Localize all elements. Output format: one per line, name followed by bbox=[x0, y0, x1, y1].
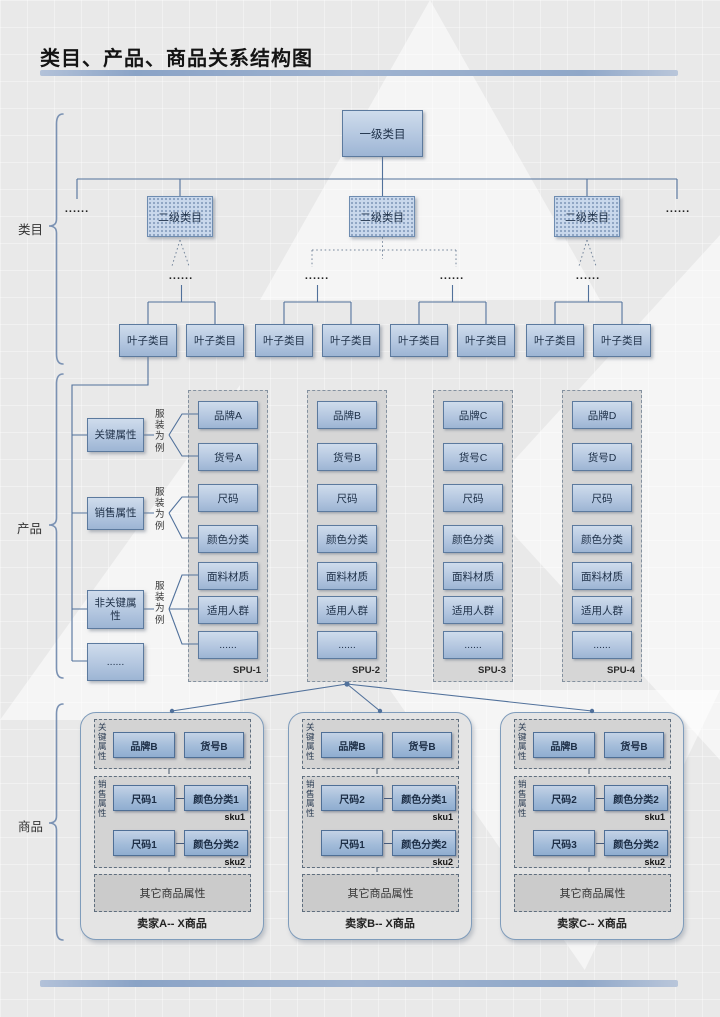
level2-category-box: 二级类目 bbox=[349, 196, 415, 237]
sku-color-box: 颜色分类1 bbox=[184, 785, 248, 811]
seller-itemno-box: 货号B bbox=[184, 732, 244, 758]
bottom-rule bbox=[40, 980, 678, 987]
title-rule bbox=[40, 70, 678, 76]
leaf-category-box: 叶子类目 bbox=[119, 324, 177, 357]
attr-group-box: 关键属性 bbox=[87, 418, 144, 452]
spu-attribute: 货号C bbox=[443, 443, 503, 471]
spu-attribute: 品牌A bbox=[198, 401, 258, 429]
sku-connector bbox=[384, 798, 392, 799]
attr-group-box: ...... bbox=[87, 643, 144, 681]
leaf-category-box: 叶子类目 bbox=[593, 324, 651, 357]
section-label-product: 产品 bbox=[17, 518, 42, 537]
spu-attribute: 货号A bbox=[198, 443, 258, 471]
seller-key-attrs-section: 关键属性 品牌B 货号B bbox=[514, 719, 671, 769]
level2-category-box: 二级类目 bbox=[147, 196, 213, 237]
sku-connector bbox=[596, 798, 604, 799]
spu-container: 品牌B 货号B 尺码 颜色分类 面料材质 适用人群 ...... SPU-2 bbox=[307, 390, 387, 682]
level2-category-box: 二级类目 bbox=[554, 196, 620, 237]
other-attrs-box: 其它商品属性 bbox=[514, 874, 671, 912]
ellipsis: ...... bbox=[156, 270, 206, 282]
seller-brand-box: 品牌B bbox=[113, 732, 175, 758]
ellipsis: ...... bbox=[653, 203, 703, 215]
sku-color-box: 颜色分类2 bbox=[604, 785, 668, 811]
sku-size-box: 尺码3 bbox=[533, 830, 595, 856]
seller-name: 卖家C-- X商品 bbox=[501, 915, 683, 931]
spu-attribute: 适用人群 bbox=[198, 596, 258, 624]
seller-card: 关键属性 品牌B 货号B 销售属性 尺码2 颜色分类1 sku1 尺码1 颜色分… bbox=[288, 712, 472, 940]
leaf-category-box: 叶子类目 bbox=[390, 324, 448, 357]
spu-attribute: 面料材质 bbox=[572, 562, 632, 590]
spu-attribute: 颜色分类 bbox=[317, 525, 377, 553]
seller-card: 关键属性 品牌B 货号B 销售属性 尺码2 颜色分类2 sku1 尺码3 颜色分… bbox=[500, 712, 684, 940]
spu-container: 品牌A 货号A 尺码 颜色分类 面料材质 适用人群 ...... SPU-1 bbox=[188, 390, 268, 682]
key-attrs-vertical-label: 关键属性 bbox=[306, 723, 316, 761]
spu-attribute: 颜色分类 bbox=[198, 525, 258, 553]
seller-brand-box: 品牌B bbox=[533, 732, 595, 758]
sales-attrs-vertical-label: 销售属性 bbox=[518, 780, 528, 818]
spu-attribute: 面料材质 bbox=[198, 562, 258, 590]
spu-container: 品牌D 货号D 尺码 颜色分类 面料材质 适用人群 ...... SPU-4 bbox=[562, 390, 642, 682]
diagram-page: 类目、产品、商品关系结构图 类目 产品 商品 品牌A 货号A 尺码 颜色分类 面… bbox=[0, 0, 720, 1017]
sku-size-box: 尺码2 bbox=[533, 785, 595, 811]
sku-size-box: 尺码1 bbox=[113, 785, 175, 811]
spu-attribute: 品牌D bbox=[572, 401, 632, 429]
spu-attribute: 尺码 bbox=[443, 484, 503, 512]
attr-group-box: 销售属性 bbox=[87, 497, 144, 530]
other-attrs-box: 其它商品属性 bbox=[302, 874, 459, 912]
spu-attribute: 颜色分类 bbox=[572, 525, 632, 553]
sku-color-box: 颜色分类2 bbox=[184, 830, 248, 856]
page-title: 类目、产品、商品关系结构图 bbox=[40, 42, 313, 71]
other-attrs-box: 其它商品属性 bbox=[94, 874, 251, 912]
sku-tag: sku2 bbox=[432, 857, 453, 867]
sku-tag: sku2 bbox=[644, 857, 665, 867]
key-attrs-vertical-label: 关键属性 bbox=[98, 723, 108, 761]
seller-key-attrs-section: 关键属性 品牌B 货号B bbox=[94, 719, 251, 769]
sales-attrs-vertical-label: 销售属性 bbox=[306, 780, 316, 818]
seller-sales-attrs-section: 销售属性 尺码1 颜色分类1 sku1 尺码1 颜色分类2 sku2 bbox=[94, 776, 251, 868]
section-label-goods: 商品 bbox=[18, 816, 43, 835]
leaf-category-box: 叶子类目 bbox=[186, 324, 244, 357]
ellipsis: ...... bbox=[292, 270, 342, 282]
seller-itemno-box: 货号B bbox=[604, 732, 664, 758]
spu-attribute: 尺码 bbox=[198, 484, 258, 512]
seller-name: 卖家A-- X商品 bbox=[81, 915, 263, 931]
spu-attribute: ...... bbox=[317, 631, 377, 659]
sku-connector bbox=[176, 843, 184, 844]
sku-tag: sku1 bbox=[224, 812, 245, 822]
leaf-category-box: 叶子类目 bbox=[457, 324, 515, 357]
spu-attribute: 尺码 bbox=[317, 484, 377, 512]
spu-label: SPU-1 bbox=[233, 665, 261, 676]
seller-card: 关键属性 品牌B 货号B 销售属性 尺码1 颜色分类1 sku1 尺码1 颜色分… bbox=[80, 712, 264, 940]
spu-label: SPU-2 bbox=[352, 665, 380, 676]
section-label-category: 类目 bbox=[18, 219, 43, 238]
sku-color-box: 颜色分类1 bbox=[392, 785, 456, 811]
leaf-category-box: 叶子类目 bbox=[322, 324, 380, 357]
attr-note: 服装为例 bbox=[155, 409, 167, 454]
leaf-category-box: 叶子类目 bbox=[255, 324, 313, 357]
spu-attribute: 适用人群 bbox=[317, 596, 377, 624]
spu-attribute: 品牌B bbox=[317, 401, 377, 429]
spu-container: 品牌C 货号C 尺码 颜色分类 面料材质 适用人群 ...... SPU-3 bbox=[433, 390, 513, 682]
sku-tag: sku1 bbox=[644, 812, 665, 822]
seller-sales-attrs-section: 销售属性 尺码2 颜色分类2 sku1 尺码3 颜色分类2 sku2 bbox=[514, 776, 671, 868]
sku-tag: sku2 bbox=[224, 857, 245, 867]
attr-note: 服装为例 bbox=[155, 581, 167, 626]
sku-size-box: 尺码2 bbox=[321, 785, 383, 811]
ellipsis: ...... bbox=[563, 270, 613, 282]
root-category-box: 一级类目 bbox=[342, 110, 423, 157]
spu-attribute: 适用人群 bbox=[443, 596, 503, 624]
ellipsis: ...... bbox=[52, 203, 102, 215]
spu-attribute: 货号B bbox=[317, 443, 377, 471]
seller-key-attrs-section: 关键属性 品牌B 货号B bbox=[302, 719, 459, 769]
sku-size-box: 尺码1 bbox=[321, 830, 383, 856]
spu-attribute: ...... bbox=[443, 631, 503, 659]
attr-group-box: 非关键属性 bbox=[87, 590, 144, 629]
spu-attribute: ...... bbox=[572, 631, 632, 659]
spu-label: SPU-3 bbox=[478, 665, 506, 676]
spu-attribute: ...... bbox=[198, 631, 258, 659]
seller-brand-box: 品牌B bbox=[321, 732, 383, 758]
sku-color-box: 颜色分类2 bbox=[604, 830, 668, 856]
spu-attribute: 品牌C bbox=[443, 401, 503, 429]
leaf-category-box: 叶子类目 bbox=[526, 324, 584, 357]
sku-connector bbox=[176, 798, 184, 799]
ellipsis: ...... bbox=[427, 270, 477, 282]
sku-connector bbox=[384, 843, 392, 844]
sales-attrs-vertical-label: 销售属性 bbox=[98, 780, 108, 818]
sku-size-box: 尺码1 bbox=[113, 830, 175, 856]
attr-note: 服装为例 bbox=[155, 487, 167, 532]
seller-itemno-box: 货号B bbox=[392, 732, 452, 758]
spu-attribute: 适用人群 bbox=[572, 596, 632, 624]
spu-attribute: 面料材质 bbox=[317, 562, 377, 590]
spu-attribute: 面料材质 bbox=[443, 562, 503, 590]
sku-tag: sku1 bbox=[432, 812, 453, 822]
spu-label: SPU-4 bbox=[607, 665, 635, 676]
seller-name: 卖家B-- X商品 bbox=[289, 915, 471, 931]
seller-sales-attrs-section: 销售属性 尺码2 颜色分类1 sku1 尺码1 颜色分类2 sku2 bbox=[302, 776, 459, 868]
key-attrs-vertical-label: 关键属性 bbox=[518, 723, 528, 761]
spu-attribute: 货号D bbox=[572, 443, 632, 471]
spu-attribute: 尺码 bbox=[572, 484, 632, 512]
sku-color-box: 颜色分类2 bbox=[392, 830, 456, 856]
spu-attribute: 颜色分类 bbox=[443, 525, 503, 553]
sku-connector bbox=[596, 843, 604, 844]
